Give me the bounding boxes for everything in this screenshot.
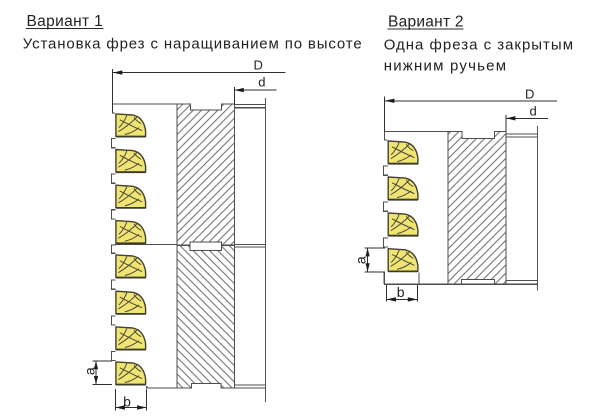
svg-text:b: b <box>123 394 131 410</box>
svg-text:нижним ручьем: нижним ручьем <box>384 58 506 75</box>
svg-text:d: d <box>258 74 265 89</box>
svg-text:a: a <box>81 367 97 375</box>
svg-text:Одна фреза с закрытым: Одна фреза с закрытым <box>384 37 573 54</box>
svg-text:b: b <box>397 284 405 300</box>
svg-text:D: D <box>254 58 263 73</box>
svg-text:D: D <box>525 86 534 101</box>
svg-text:d: d <box>530 104 537 119</box>
svg-text:Вариант 2: Вариант 2 <box>388 14 464 31</box>
svg-text:Вариант 1: Вариант 1 <box>27 13 103 30</box>
svg-text:Установка фрез с наращиванием: Установка фрез с наращиванием по высоте <box>23 35 362 52</box>
svg-text:a: a <box>352 256 368 264</box>
